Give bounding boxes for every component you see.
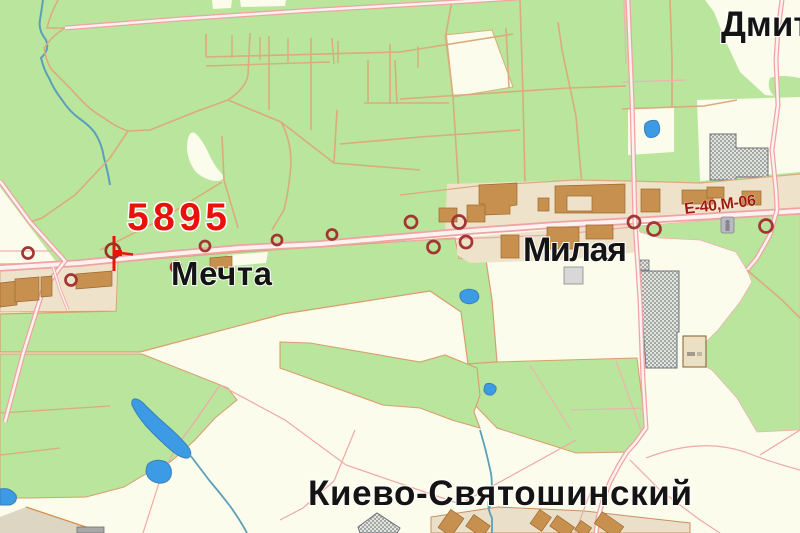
svg-text:Дмит: Дмит (721, 5, 800, 44)
svg-text:Киево-Святошинский: Киево-Святошинский (308, 474, 692, 513)
svg-text:Милая: Милая (523, 231, 627, 269)
svg-text:Мечта: Мечта (171, 255, 273, 292)
